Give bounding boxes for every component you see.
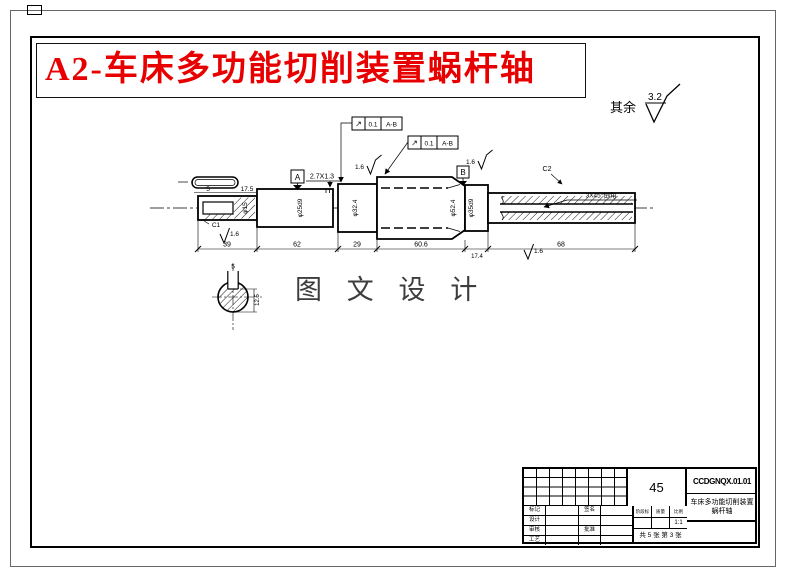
chamfer-c2-label: C2 bbox=[543, 166, 552, 173]
default-roughness-value: 3.2 bbox=[648, 92, 662, 103]
sig-label-1: 标记 bbox=[524, 506, 546, 515]
drawing-number: CCDGNQX.01.01 bbox=[687, 469, 757, 494]
header-mass: 质量 bbox=[652, 506, 670, 518]
sheet-count: 共 5 张 第 3 张 bbox=[632, 529, 687, 544]
sig-row-2: 设计 bbox=[524, 516, 632, 526]
default-roughness-note: 其余 3.2 bbox=[610, 84, 680, 122]
dia-label-s1: φ15 bbox=[242, 202, 249, 214]
groove-dim: 2.7X1.3 bbox=[310, 174, 334, 181]
title-block: 45 CCDGNQX.01.01 车床多功能切削装置 蜗杆轴 标记 签名 设计 … bbox=[522, 467, 757, 544]
roughness-1: 1.6 bbox=[230, 231, 239, 238]
keyway-top-view: 5 17.5 bbox=[178, 177, 256, 193]
chamfer-c2: C2 bbox=[543, 166, 562, 184]
shaft-outline bbox=[198, 177, 635, 239]
datum-b-letter: B bbox=[460, 168, 465, 177]
part-name-cell: 车床多功能切削装置 蜗杆轴 bbox=[687, 494, 757, 522]
section-keyway-depth: 12.5 bbox=[255, 294, 261, 306]
sig-row-1: 标记 签名 bbox=[524, 506, 632, 516]
product-name: 车床多功能切削装置 bbox=[687, 498, 757, 507]
keyway-section-view: 5 12.5 bbox=[212, 263, 262, 330]
drawing-sheet: A2-车床多功能切削装置蜗杆轴 图 文 设 计 5 17.5 bbox=[0, 0, 786, 577]
dim-len3: 29 bbox=[353, 242, 361, 249]
dim-len6: 68 bbox=[557, 242, 565, 249]
fcf1-symbol: ↗ bbox=[355, 120, 362, 129]
fcf1-datum: A-B bbox=[386, 122, 397, 129]
chamfer-c1: C1 bbox=[202, 220, 221, 230]
default-roughness-label: 其余 bbox=[610, 100, 636, 115]
section-keyway-width: 5 bbox=[231, 264, 235, 271]
scale-value: 1:1 bbox=[670, 518, 687, 529]
roughness-4: 1.6 bbox=[534, 248, 543, 255]
dim-len5: 17.4 bbox=[471, 254, 483, 260]
sig-label-2: 设计 bbox=[524, 516, 546, 525]
section6-hatch-bottom bbox=[502, 212, 632, 220]
dia-label-s5: φ35d9 bbox=[468, 198, 475, 217]
revision-grid bbox=[524, 469, 628, 506]
dia-label-s2: φ25d9 bbox=[297, 198, 304, 217]
section1-bottom-hatch bbox=[204, 215, 233, 220]
fcf-2: ↗ 0.1 A-B bbox=[385, 136, 458, 174]
header-scale: 比例 bbox=[670, 506, 687, 518]
keyway-length-dim: 17.5 bbox=[241, 186, 254, 193]
roughness-2: 1.6 bbox=[355, 164, 364, 171]
sig-row-3: 审核 批准 bbox=[524, 526, 632, 536]
roughness-3: 1.6 bbox=[466, 159, 475, 166]
fcf1-tolerance: 0.1 bbox=[368, 122, 377, 129]
dia-label-s3: φ32.4 bbox=[352, 199, 359, 216]
fcf2-symbol: ↗ bbox=[411, 139, 418, 148]
keyway-width-dim: 5 bbox=[206, 186, 210, 193]
chamfer-c1-label: C1 bbox=[212, 222, 221, 229]
dim-len4: 60.6 bbox=[414, 242, 428, 249]
sig-mid-label-1: 签名 bbox=[579, 506, 601, 515]
part-name: 蜗杆轴 bbox=[687, 507, 757, 516]
sig-mid-label-3: 批准 bbox=[579, 526, 601, 535]
dim-len2: 62 bbox=[293, 242, 301, 249]
fcf2-datum: A-B bbox=[442, 141, 453, 148]
fcf2-tolerance: 0.1 bbox=[424, 141, 433, 148]
sig-label-3: 审核 bbox=[524, 526, 546, 535]
right-end-note-text: 3X45°倒角 bbox=[586, 191, 617, 200]
dia-label-s4: φ52.4 bbox=[450, 199, 457, 216]
shaft-section-2 bbox=[257, 189, 333, 227]
datum-a-letter: A bbox=[295, 173, 301, 182]
material-cell: 45 bbox=[628, 469, 687, 506]
sig-label-4: 工艺 bbox=[524, 536, 546, 545]
title-block-right: CCDGNQX.01.01 车床多功能切削装置 蜗杆轴 bbox=[687, 469, 757, 544]
sig-row-4: 工艺 bbox=[524, 536, 632, 544]
groove-callout: 2.7X1.3 bbox=[306, 174, 341, 188]
datum-a: A bbox=[291, 170, 304, 190]
section1-keyslot bbox=[203, 202, 233, 214]
header-stage: 阶段标记 bbox=[634, 506, 652, 518]
